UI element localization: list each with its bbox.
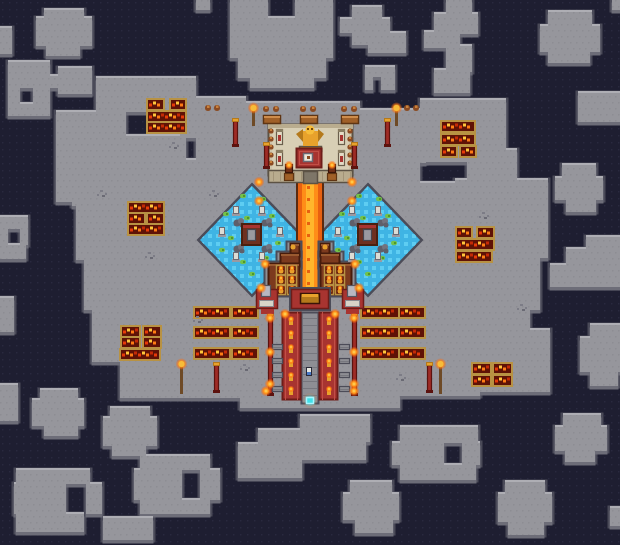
game-viewport	[0, 0, 620, 545]
game-map-canvas[interactable]	[0, 0, 620, 545]
